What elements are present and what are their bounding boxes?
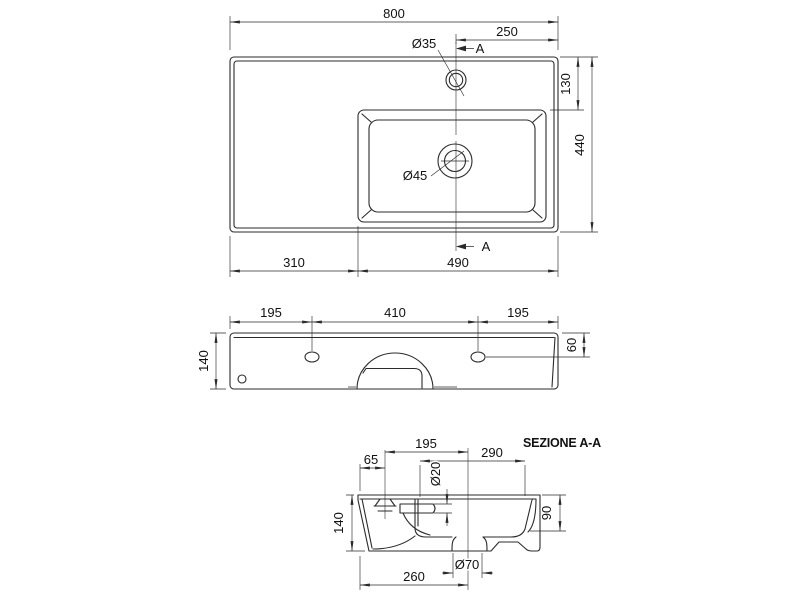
section-right-bottom-outline [487, 495, 540, 551]
drain-pedestal [452, 537, 487, 551]
section-marker-bottom-label: A [482, 239, 491, 254]
dim-195R-label: 195 [507, 305, 529, 320]
dim-440-label: 440 [572, 134, 587, 156]
fixing-hole-left [305, 352, 319, 362]
bowl-inner-profile [415, 499, 533, 537]
front-view-outline [230, 333, 558, 389]
basin-outline [358, 110, 546, 222]
dim-140F-label: 140 [196, 350, 211, 372]
front-view-extension-lines [210, 316, 590, 389]
dim-490-label: 490 [447, 255, 469, 270]
front-view: 195 410 195 140 60 [196, 305, 590, 389]
dim-130-label: 130 [558, 73, 573, 95]
dim-800-label: 800 [383, 6, 405, 21]
drain-hole [438, 144, 472, 178]
dim-90-label: 90 [539, 506, 554, 520]
fixing-hole-right [471, 352, 485, 362]
technical-drawing-page: 800 250 Ø35 A 130 440 Ø45 A 310 490 195 … [0, 0, 800, 600]
faucet-dia-label: Ø35 [412, 36, 437, 51]
dim-290-label: 290 [481, 445, 503, 460]
front-right-edge-inner [552, 338, 555, 388]
dim-310-label: 310 [283, 255, 305, 270]
dim-20-label: Ø20 [428, 462, 443, 487]
top-view-rim-line [234, 61, 554, 228]
dim-260-label: 260 [403, 569, 425, 584]
overflow-front-hole [238, 375, 246, 383]
dim-195L-label: 195 [260, 305, 282, 320]
top-view-extension-lines [230, 16, 598, 277]
top-view: 800 250 Ø35 A 130 440 Ø45 A 310 490 [230, 6, 598, 277]
dim-410-label: 410 [384, 305, 406, 320]
section-marker-top-label: A [476, 41, 485, 56]
dim-250-label: 250 [496, 24, 518, 39]
basin-corner-ticks [362, 114, 542, 218]
section-view: SEZIONE A-A 65 195 290 [331, 436, 601, 590]
dim-65-label: 65 [364, 452, 378, 467]
washbasin-technical-drawing: 800 250 Ø35 A 130 440 Ø45 A 310 490 195 … [0, 0, 800, 600]
top-view-outer-outline [230, 57, 558, 232]
drain-arch-inner-detail [363, 369, 422, 389]
section-marker-bottom [456, 244, 474, 250]
dim-60-label: 60 [564, 338, 579, 352]
basin-bottom-outline [369, 120, 535, 212]
dim-70-label: Ø70 [455, 557, 480, 572]
dim-140S-label: 140 [331, 512, 346, 534]
section-title: SEZIONE A-A [523, 436, 601, 450]
section-marker-top [456, 46, 474, 52]
drain-dia-leader [431, 151, 464, 176]
drain-dia-label: Ø45 [403, 168, 428, 183]
dim-195S-label: 195 [415, 436, 437, 451]
